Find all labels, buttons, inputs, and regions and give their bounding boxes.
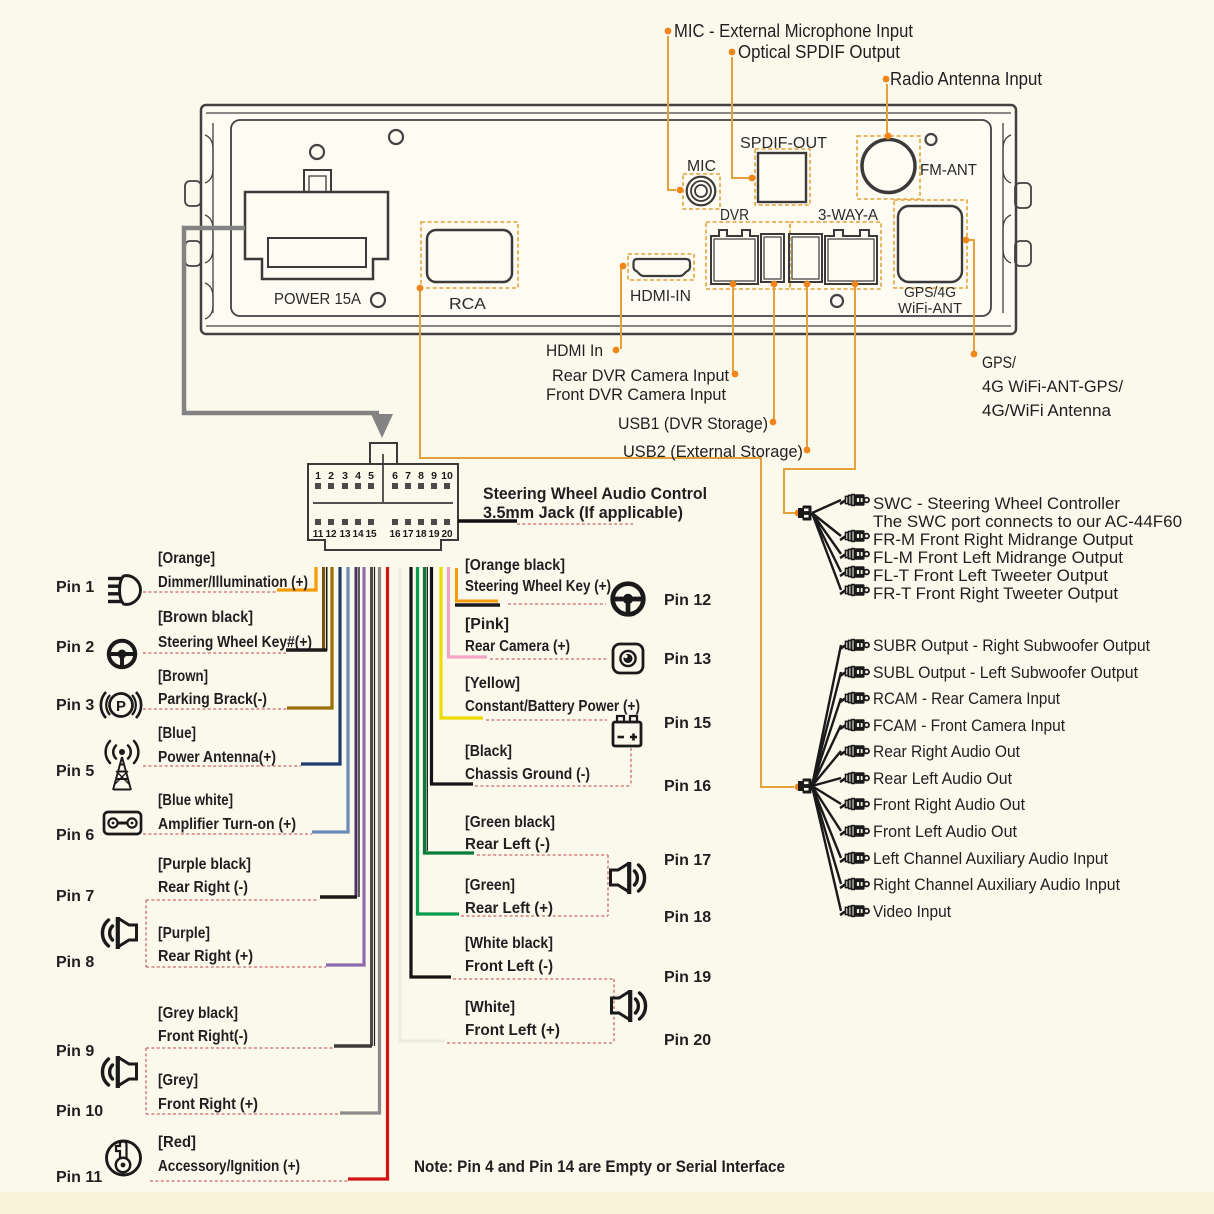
svg-text:4: 4 bbox=[355, 470, 361, 482]
svg-text:Rear Right (+): Rear Right (+) bbox=[158, 948, 253, 965]
svg-text:Front Right Audio Out: Front Right Audio Out bbox=[873, 795, 1025, 814]
svg-text:Pin 2: Pin 2 bbox=[56, 639, 94, 656]
svg-text:2: 2 bbox=[328, 470, 334, 482]
svg-text:10: 10 bbox=[441, 470, 453, 482]
svg-text:[Pink]: [Pink] bbox=[465, 616, 509, 633]
svg-text:[Green black]: [Green black] bbox=[465, 814, 555, 831]
svg-text:Pin 6: Pin 6 bbox=[56, 827, 94, 844]
svg-text:3: 3 bbox=[342, 470, 348, 482]
svg-text:MIC - External Microphone Inpu: MIC - External Microphone Input bbox=[674, 21, 913, 41]
svg-text:Pin 20: Pin 20 bbox=[664, 1032, 711, 1049]
svg-text:[Orange black]: [Orange black] bbox=[465, 557, 565, 574]
svg-text:Steering Wheel Audio Control: Steering Wheel Audio Control bbox=[483, 484, 707, 503]
svg-text:Front DVR Camera Input: Front DVR Camera Input bbox=[546, 385, 726, 404]
svg-text:FCAM - Front Camera Input: FCAM - Front Camera Input bbox=[873, 716, 1065, 735]
svg-text:Right Channel Auxiliary Audio: Right Channel Auxiliary Audio Input bbox=[873, 875, 1120, 894]
svg-text:POWER 15A: POWER 15A bbox=[274, 291, 362, 308]
svg-text:Rear Right (-): Rear Right (-) bbox=[158, 879, 248, 896]
svg-text:SUBR Output - Right Subwoofer: SUBR Output - Right Subwoofer Output bbox=[873, 636, 1150, 655]
svg-text:12: 12 bbox=[325, 529, 337, 540]
svg-text:Pin 15: Pin 15 bbox=[664, 715, 711, 732]
svg-text:Video Input: Video Input bbox=[873, 902, 951, 921]
svg-text:8: 8 bbox=[418, 470, 424, 482]
svg-text:1: 1 bbox=[315, 470, 321, 482]
svg-text:P: P bbox=[116, 698, 126, 715]
svg-text:The SWC port connects to our A: The SWC port connects to our AC-44F60 bbox=[873, 512, 1182, 531]
svg-text:Front Left (+): Front Left (+) bbox=[465, 1022, 560, 1039]
svg-text:Optical SPDIF Output: Optical SPDIF Output bbox=[738, 42, 900, 62]
svg-text:FR-T Front Right Tweeter Outpu: FR-T Front Right Tweeter Output bbox=[873, 584, 1118, 603]
svg-text:18: 18 bbox=[415, 529, 427, 540]
svg-text:MIC: MIC bbox=[687, 158, 716, 175]
svg-text:HDMI-IN: HDMI-IN bbox=[630, 288, 691, 305]
svg-text:17: 17 bbox=[402, 529, 414, 540]
svg-text:16: 16 bbox=[389, 529, 401, 540]
svg-text:4G/WiFi Antenna: 4G/WiFi Antenna bbox=[982, 401, 1112, 420]
svg-text:11: 11 bbox=[313, 529, 324, 540]
svg-text:[Green]: [Green] bbox=[465, 877, 515, 894]
svg-text:Radio Antenna Input: Radio Antenna Input bbox=[890, 69, 1042, 89]
svg-text:Parking Brack(-): Parking Brack(-) bbox=[158, 691, 267, 708]
svg-text:HDMI In: HDMI In bbox=[546, 341, 603, 360]
svg-text:[Brown]: [Brown] bbox=[158, 668, 208, 685]
svg-text:15: 15 bbox=[365, 529, 377, 540]
svg-text:Front Left Audio Out: Front Left Audio Out bbox=[873, 822, 1017, 841]
svg-text:FR-M Front Right Midrange Outp: FR-M Front Right Midrange Output bbox=[873, 530, 1133, 549]
svg-text:Rear DVR Camera Input: Rear DVR Camera Input bbox=[552, 366, 729, 385]
svg-text:Dimmer/Illumination (+): Dimmer/Illumination (+) bbox=[158, 574, 308, 591]
svg-text:Front Left (-): Front Left (-) bbox=[465, 958, 553, 975]
svg-text:Pin 8: Pin 8 bbox=[56, 954, 94, 971]
svg-text:[Blue white]: [Blue white] bbox=[158, 792, 233, 809]
svg-text:Front Right(-): Front Right(-) bbox=[158, 1028, 248, 1045]
svg-text:[Orange]: [Orange] bbox=[158, 550, 215, 567]
svg-text:Left Channel Auxiliary Audio I: Left Channel Auxiliary Audio Input bbox=[873, 849, 1108, 868]
svg-text:Pin 18: Pin 18 bbox=[664, 909, 711, 926]
svg-text:Constant/Battery Power (+): Constant/Battery Power (+) bbox=[465, 698, 640, 715]
svg-text:Power Antenna(+): Power Antenna(+) bbox=[158, 749, 276, 766]
svg-text:9: 9 bbox=[431, 470, 437, 482]
svg-text:Pin 3: Pin 3 bbox=[56, 697, 94, 714]
svg-text:Rear Left (+): Rear Left (+) bbox=[465, 900, 553, 917]
svg-text:Amplifier Turn-on (+): Amplifier Turn-on (+) bbox=[158, 816, 296, 833]
svg-text:Front Right (+): Front Right (+) bbox=[158, 1096, 258, 1113]
svg-text:Pin 13: Pin 13 bbox=[664, 651, 711, 668]
svg-text:5: 5 bbox=[368, 470, 374, 482]
svg-text:Pin 5: Pin 5 bbox=[56, 763, 94, 780]
svg-text:4G WiFi-ANT-GPS/: 4G WiFi-ANT-GPS/ bbox=[982, 377, 1123, 396]
svg-text:[Yellow]: [Yellow] bbox=[465, 675, 520, 692]
svg-text:Pin 17: Pin 17 bbox=[664, 852, 711, 869]
svg-text:Steering Wheel Key (+): Steering Wheel Key (+) bbox=[465, 578, 611, 595]
svg-text:Accessory/Ignition (+): Accessory/Ignition (+) bbox=[158, 1158, 300, 1175]
svg-text:GPS/: GPS/ bbox=[982, 353, 1016, 372]
svg-text:3.5mm Jack (If applicable): 3.5mm Jack (If applicable) bbox=[483, 503, 683, 522]
svg-text:Pin 7: Pin 7 bbox=[56, 888, 94, 905]
svg-text:Rear Left (-): Rear Left (-) bbox=[465, 836, 550, 853]
svg-text:[Grey black]: [Grey black] bbox=[158, 1005, 238, 1022]
svg-text:FM-ANT: FM-ANT bbox=[920, 162, 977, 179]
svg-text:Steering Wheel Key#(+): Steering Wheel Key#(+) bbox=[158, 634, 312, 651]
svg-text:USB1 (DVR Storage): USB1 (DVR Storage) bbox=[618, 414, 768, 433]
svg-text:Pin 10: Pin 10 bbox=[56, 1103, 103, 1120]
svg-text:Rear Right Audio Out: Rear Right Audio Out bbox=[873, 742, 1020, 761]
svg-text:[Black]: [Black] bbox=[465, 743, 512, 760]
svg-text:FL-M Front Left Midrange Outpu: FL-M Front Left Midrange Output bbox=[873, 548, 1123, 567]
svg-text:Chassis Ground (-): Chassis Ground (-) bbox=[465, 766, 590, 783]
svg-text:[Red]: [Red] bbox=[158, 1134, 196, 1151]
svg-text:[White]: [White] bbox=[465, 999, 515, 1016]
svg-text:[White black]: [White black] bbox=[465, 935, 553, 952]
svg-text:Note: Pin 4 and Pin 14 are Emp: Note: Pin 4 and Pin 14 are Empty or Seri… bbox=[414, 1158, 785, 1176]
svg-text:7: 7 bbox=[405, 470, 411, 482]
svg-text:[Grey]: [Grey] bbox=[158, 1072, 198, 1089]
svg-text:RCAM - Rear Camera Input: RCAM - Rear Camera Input bbox=[873, 689, 1060, 708]
svg-text:GPS/4G: GPS/4G bbox=[904, 285, 956, 301]
svg-text:FL-T Front Left Tweeter Output: FL-T Front Left Tweeter Output bbox=[873, 566, 1108, 585]
svg-text:[Purple black]: [Purple black] bbox=[158, 856, 251, 873]
svg-text:RCA: RCA bbox=[449, 296, 486, 313]
svg-text:13: 13 bbox=[339, 529, 351, 540]
svg-text:Pin 1: Pin 1 bbox=[56, 579, 94, 596]
svg-text:Pin 16: Pin 16 bbox=[664, 778, 711, 795]
svg-text:USB2 (External Storage): USB2 (External Storage) bbox=[623, 442, 803, 461]
svg-text:SUBL Output - Left Subwoofer O: SUBL Output - Left Subwoofer Output bbox=[873, 663, 1138, 682]
svg-text:[Blue]: [Blue] bbox=[158, 725, 196, 742]
svg-text:Pin 19: Pin 19 bbox=[664, 969, 711, 986]
svg-text:14: 14 bbox=[352, 529, 364, 540]
svg-text:6: 6 bbox=[392, 470, 398, 482]
svg-text:Pin 12: Pin 12 bbox=[664, 592, 711, 609]
svg-text:19: 19 bbox=[428, 529, 440, 540]
svg-text:Rear Left Audio Out: Rear Left Audio Out bbox=[873, 769, 1012, 788]
svg-text:20: 20 bbox=[441, 529, 453, 540]
svg-text:[Brown black]: [Brown black] bbox=[158, 609, 253, 626]
svg-text:SWC - Steering Wheel Controlle: SWC - Steering Wheel Controller bbox=[873, 494, 1120, 513]
svg-text:Pin 11: Pin 11 bbox=[56, 1169, 102, 1186]
svg-text:WiFi-ANT: WiFi-ANT bbox=[898, 301, 962, 317]
svg-text:Rear Camera (+): Rear Camera (+) bbox=[465, 638, 570, 655]
svg-text:Pin 9: Pin 9 bbox=[56, 1043, 94, 1060]
svg-text:[Purple]: [Purple] bbox=[158, 925, 210, 942]
